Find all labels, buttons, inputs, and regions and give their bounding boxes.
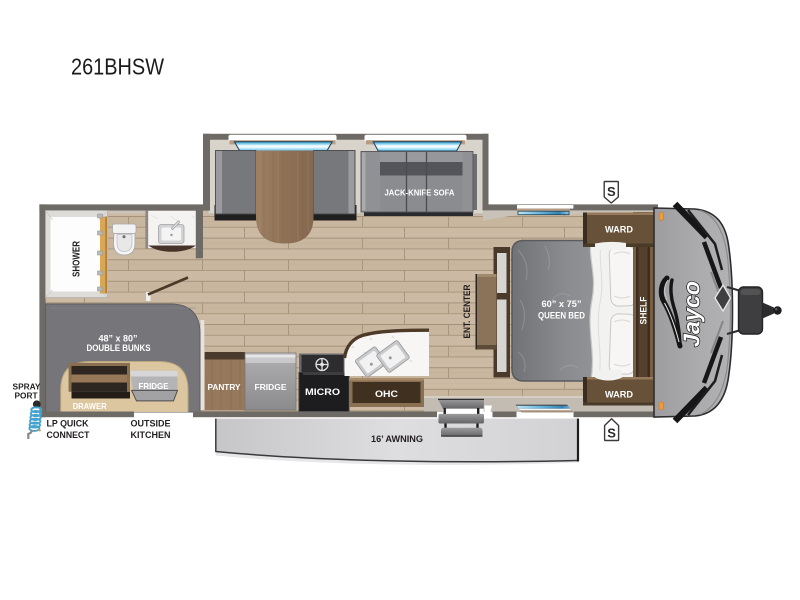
svg-text:ENT. CENTER: ENT. CENTER (462, 284, 472, 338)
svg-text:S: S (607, 184, 616, 199)
svg-text:SHELF: SHELF (639, 296, 649, 324)
svg-text:OHC: OHC (375, 389, 399, 399)
svg-text:60” x 75”: 60” x 75” (542, 299, 582, 309)
svg-text:DRAWER: DRAWER (73, 402, 107, 411)
svg-text:WARD: WARD (605, 390, 634, 400)
svg-text:OUTSIDE: OUTSIDE (131, 418, 171, 429)
svg-text:48” x 80”: 48” x 80” (99, 334, 138, 344)
svg-text:CONNECT: CONNECT (47, 429, 90, 440)
svg-text:LP QUICK: LP QUICK (47, 418, 89, 429)
svg-text:PANTRY: PANTRY (208, 382, 241, 392)
svg-text:16’ AWNING: 16’ AWNING (371, 433, 423, 444)
svg-text:S: S (607, 426, 616, 441)
svg-text:JACK-KNIFE SOFA: JACK-KNIFE SOFA (385, 188, 455, 198)
svg-text:QUEEN BED: QUEEN BED (538, 311, 585, 321)
svg-text:KITCHEN: KITCHEN (131, 429, 171, 440)
svg-text:SHOWER: SHOWER (71, 241, 83, 277)
svg-text:FRIDGE: FRIDGE (139, 382, 170, 391)
svg-text:WARD: WARD (605, 225, 634, 235)
svg-text:MICRO: MICRO (305, 387, 340, 397)
svg-text:PORT: PORT (15, 391, 39, 401)
svg-text:DOUBLE BUNKS: DOUBLE BUNKS (87, 343, 151, 353)
svg-text:FRIDGE: FRIDGE (255, 382, 287, 392)
svg-text:261BHSW: 261BHSW (71, 54, 165, 80)
svg-text:Jayco: Jayco (679, 281, 705, 347)
